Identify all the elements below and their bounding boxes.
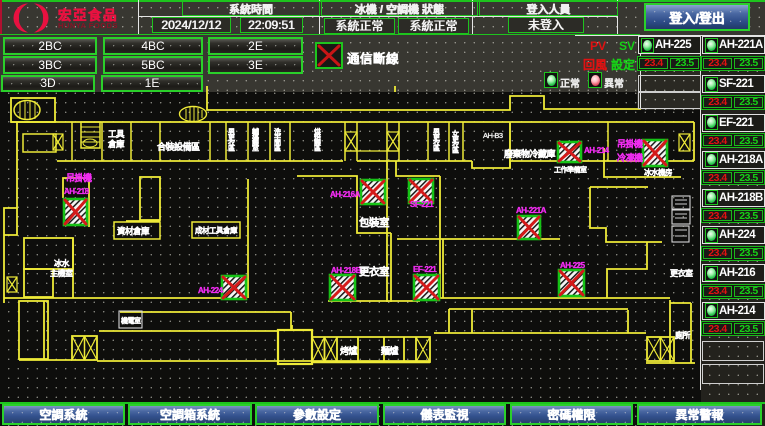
svg-text:倉庫: 倉庫: [107, 139, 125, 149]
svg-text:男更衣區: 男更衣區: [432, 128, 440, 153]
svg-text:資材倉庫: 資材倉庫: [116, 226, 150, 236]
svg-text:烤爐: 烤爐: [340, 345, 358, 356]
svg-text:廁所: 廁所: [675, 330, 690, 340]
svg-text:烘焙課區: 烘焙課區: [313, 127, 321, 153]
svg-text:吊掛機: 吊掛機: [617, 138, 643, 149]
svg-text:麵爐: 麵爐: [380, 345, 399, 356]
svg-text:輔導課室: 輔導課室: [251, 127, 259, 153]
svg-text:女更衣區: 女更衣區: [451, 129, 459, 155]
svg-text:AH-218B: AH-218B: [331, 266, 362, 275]
svg-text:AH-221A: AH-221A: [516, 206, 547, 215]
svg-text:AH-216A: AH-216A: [330, 190, 361, 199]
svg-text:AH-214: AH-214: [584, 146, 610, 155]
svg-text:AH-218: AH-218: [64, 187, 90, 196]
svg-text:AH-224: AH-224: [198, 286, 224, 295]
svg-text:包裝室: 包裝室: [359, 216, 390, 229]
svg-text:更衣室: 更衣室: [359, 265, 390, 278]
svg-text:男更衣區: 男更衣區: [227, 128, 235, 153]
svg-text:AH-B3: AH-B3: [483, 131, 503, 140]
svg-text:工具: 工具: [108, 129, 125, 139]
svg-text:AH-225: AH-225: [560, 261, 586, 270]
svg-text:主機室: 主機室: [50, 268, 73, 278]
svg-text:EF-221: EF-221: [413, 265, 437, 274]
svg-text:合裝設備區: 合裝設備區: [157, 141, 200, 152]
svg-text:SF-221: SF-221: [410, 200, 434, 209]
svg-text:成材工具倉庫: 成材工具倉庫: [195, 225, 238, 235]
svg-text:工作準備室: 工作準備室: [554, 165, 587, 174]
svg-text:冰水: 冰水: [54, 258, 70, 268]
svg-text:機電室: 機電室: [121, 316, 141, 325]
svg-text:吊掛機: 吊掛機: [66, 172, 92, 183]
svg-text:冷凍機: 冷凍機: [617, 152, 643, 163]
svg-text:洗手間區: 洗手間區: [274, 127, 282, 153]
svg-text:廢棄物冷藏庫: 廢棄物冷藏庫: [504, 148, 556, 159]
svg-text:冰水機房: 冰水機房: [644, 167, 673, 177]
svg-text:更衣室: 更衣室: [670, 268, 693, 278]
